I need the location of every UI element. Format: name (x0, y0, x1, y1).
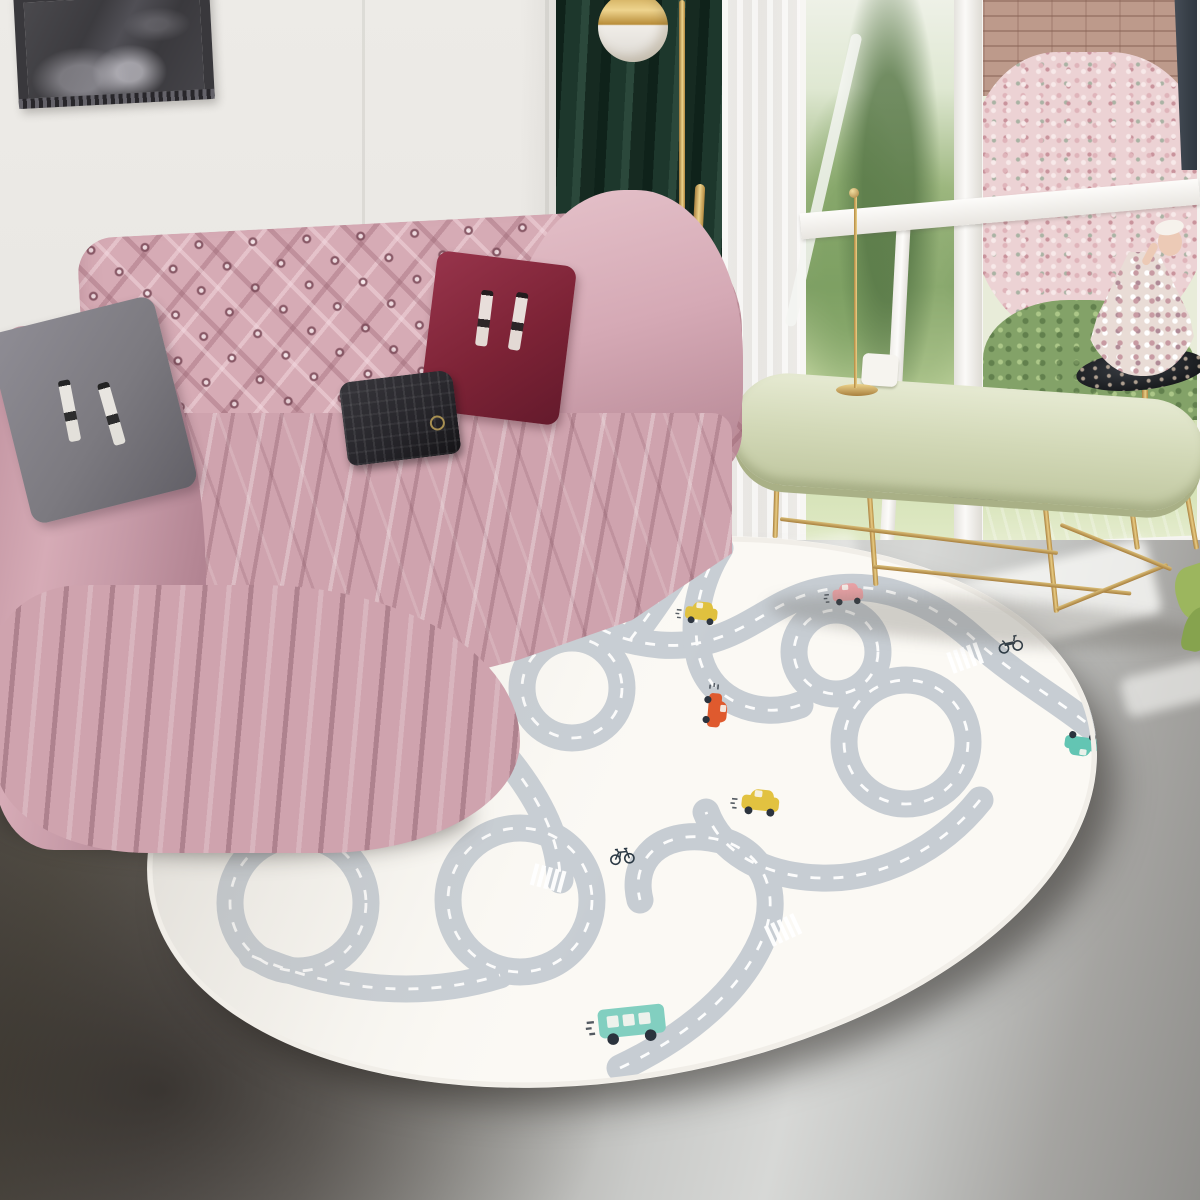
clutch-emblem-icon (429, 415, 446, 432)
living-room-scene (0, 0, 1200, 1200)
wall-art-frame (13, 0, 215, 109)
candle-box (861, 353, 899, 387)
clutch-bag (338, 369, 461, 466)
candlestick (854, 196, 857, 388)
figure-print-icon (508, 292, 529, 351)
candlestick-finial (849, 188, 859, 198)
figure-print-icon (97, 381, 126, 446)
figure-print-icon (58, 379, 82, 442)
gold-disc (836, 384, 878, 396)
figure-print-icon (475, 290, 494, 347)
